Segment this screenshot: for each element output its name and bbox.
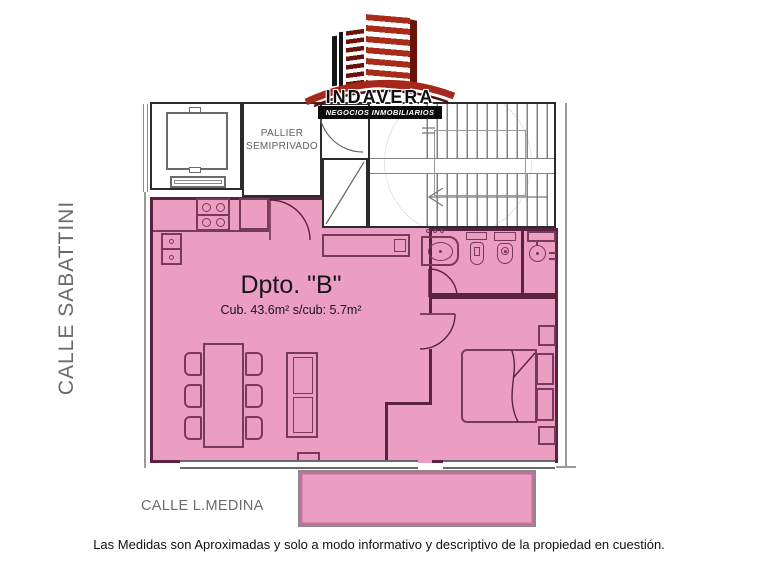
elevator-door: [170, 176, 226, 188]
unit-title: Dpto. "B": [150, 271, 432, 300]
pallier-label-line1: PALLIER: [244, 127, 320, 140]
street-label-bottom: CALLE L.MEDINA: [141, 498, 264, 514]
street-label-left: CALLE SABATTINI: [55, 173, 81, 423]
vent-shaft: [322, 158, 368, 228]
outer-wall-right-foot: [556, 466, 576, 468]
basin-dot: [439, 250, 442, 253]
chair: [184, 416, 202, 440]
burner-icon: [202, 203, 211, 212]
bidet: [494, 232, 516, 241]
disclaimer-text: Las Medidas son Aproximadas y solo a mod…: [0, 537, 758, 552]
shower-divider-wall: [521, 228, 524, 296]
dining-table: [203, 343, 244, 448]
toilet-opening: [474, 247, 480, 256]
stove-divider: [198, 214, 228, 216]
sink-basin-icon: [169, 239, 174, 244]
shower-drain-icon: [529, 245, 546, 262]
sofa-cushion: [293, 357, 313, 394]
tap-icon: [426, 229, 430, 233]
pillow: [536, 388, 554, 421]
closet-section: [394, 239, 406, 252]
kitchen-counter-edge: [153, 230, 269, 232]
elevator-door-inner: [174, 180, 222, 184]
drain-stem: [536, 240, 538, 246]
stove: [196, 198, 230, 231]
chair: [184, 352, 202, 376]
bed: [461, 349, 537, 423]
burner-icon: [216, 218, 225, 227]
unit-area: Cub. 43.6m² s/cub: 5.7m²: [150, 303, 432, 317]
sink-divider: [163, 248, 180, 250]
drain-dot: [536, 252, 539, 255]
pillow: [536, 353, 554, 385]
chair: [245, 416, 263, 440]
shower-shelf: [527, 231, 556, 242]
vanity-sink: [421, 236, 459, 266]
pallier-label: PALLIER SEMIPRIVADO: [244, 127, 320, 153]
corridor-wall-lower: [429, 349, 432, 402]
elevator-room: [150, 102, 242, 190]
floor-plan-page: PALLIER SEMIPRIVADO Dpto. "B" Cub. 43.6m…: [0, 0, 758, 564]
fridge: [239, 198, 269, 230]
sink-basin-icon: [169, 255, 174, 260]
nightstand-bottom: [538, 426, 556, 445]
elevator-mark: [189, 107, 201, 113]
kitchen-sink: [161, 233, 182, 265]
towel-bar-icon: [549, 252, 556, 254]
closet: [322, 234, 410, 257]
outer-wall-left-line: [143, 104, 148, 192]
toilet-bowl: [470, 242, 484, 265]
elevator-car: [166, 112, 228, 170]
brand-tagline: NEGOCIOS INMOBILIARIOS: [318, 106, 442, 119]
burner-icon: [202, 218, 211, 227]
window-bedroom: [443, 460, 555, 469]
chair: [184, 384, 202, 408]
outer-wall-right: [565, 103, 567, 467]
nightstand-top: [538, 325, 556, 346]
towel-bar-icon: [549, 258, 556, 260]
bidet-dot: [504, 250, 507, 253]
outer-wall-left-thin: [144, 192, 146, 468]
chair: [245, 384, 263, 408]
burner-icon: [216, 203, 225, 212]
balcony: [298, 470, 536, 527]
logo: INDAVERA NEGOCIOS INMOBILIARIOS: [298, 8, 462, 124]
pallier-label-line2: SEMIPRIVADO: [244, 140, 320, 153]
stair-rail: [434, 130, 526, 196]
tap-icon: [440, 229, 444, 233]
tap-icon: [433, 229, 437, 233]
elevator-mark: [189, 167, 201, 173]
sofa: [286, 352, 318, 438]
brand-name: INDAVERA: [298, 87, 462, 108]
chair: [245, 352, 263, 376]
bedroom-extension: [385, 402, 432, 463]
window-living: [180, 460, 418, 469]
toilet: [466, 232, 487, 240]
bidet-bowl: [497, 243, 513, 264]
sofa-cushion: [293, 397, 313, 433]
